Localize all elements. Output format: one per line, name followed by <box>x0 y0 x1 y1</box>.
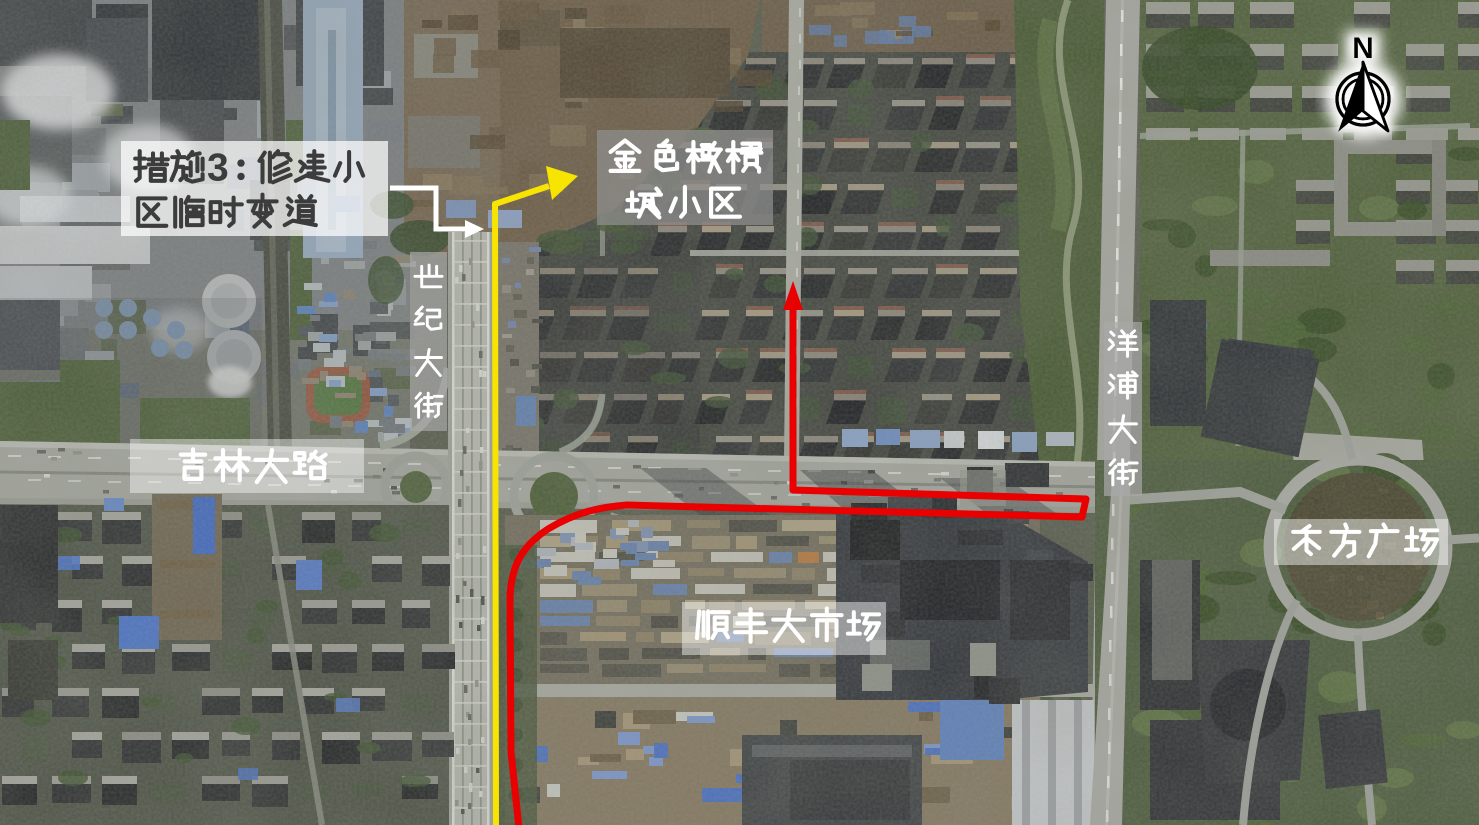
svg-text:N: N <box>1352 32 1374 65</box>
svg-text:3: 3 <box>207 146 229 189</box>
